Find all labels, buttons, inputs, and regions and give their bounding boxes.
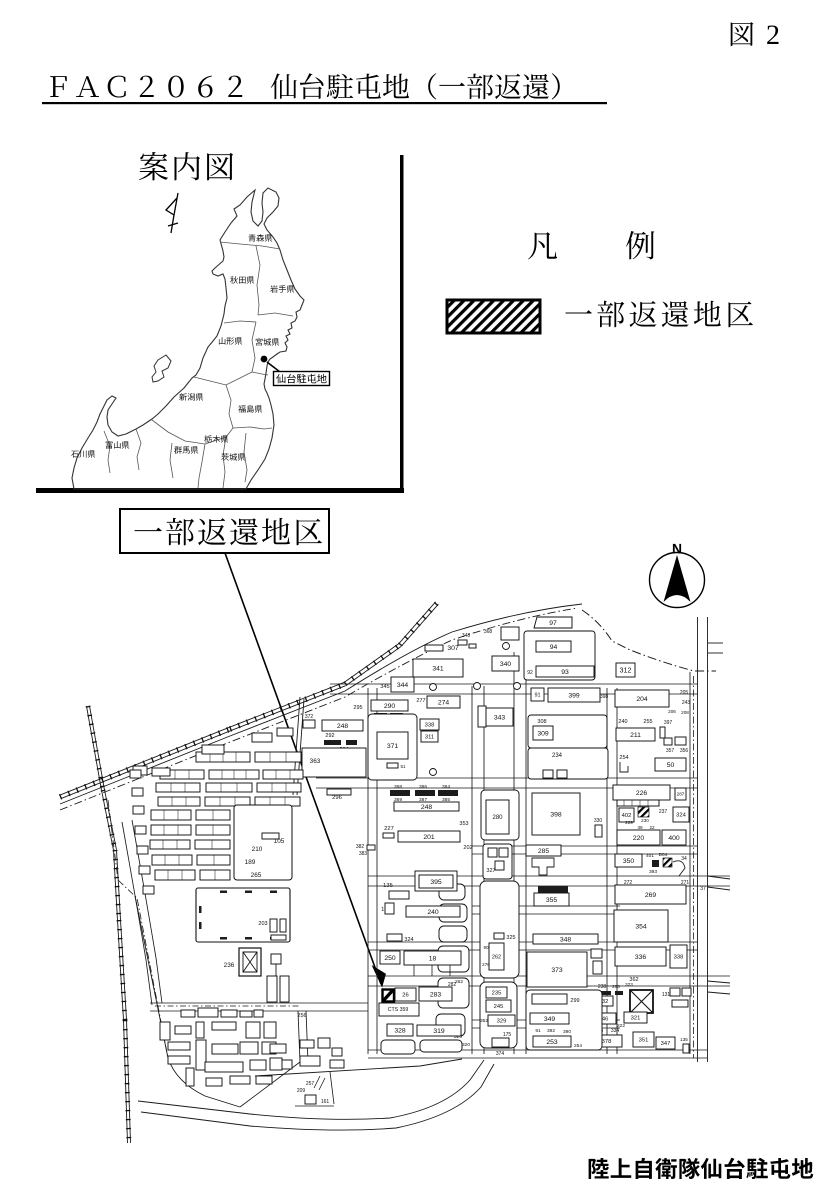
svg-text:257: 257 [306, 1081, 315, 1087]
svg-text:248: 248 [337, 723, 349, 730]
svg-text:94: 94 [550, 644, 558, 651]
svg-text:328: 328 [394, 1027, 406, 1034]
svg-text:235: 235 [492, 991, 502, 997]
svg-text:248: 248 [421, 804, 433, 811]
svg-text:254: 254 [574, 1043, 582, 1049]
svg-text:392: 392 [547, 1028, 555, 1034]
svg-text:256: 256 [297, 1013, 306, 1019]
svg-text:327: 327 [486, 868, 495, 874]
svg-text:345: 345 [380, 684, 389, 690]
svg-text:320: 320 [462, 1042, 470, 1048]
svg-text:234: 234 [552, 753, 563, 759]
svg-text:349: 349 [544, 1016, 556, 1023]
svg-text:368: 368 [394, 784, 402, 790]
svg-text:175: 175 [503, 1032, 512, 1038]
svg-text:206: 206 [668, 709, 676, 714]
svg-text:321: 321 [631, 1016, 641, 1022]
svg-text:355: 355 [546, 897, 558, 904]
svg-text:356: 356 [680, 748, 689, 754]
svg-text:277: 277 [416, 698, 425, 704]
svg-text:253: 253 [546, 1039, 558, 1046]
svg-text:240: 240 [618, 719, 627, 725]
svg-text:338: 338 [674, 955, 684, 961]
svg-text:287: 287 [677, 792, 685, 797]
svg-text:37: 37 [700, 886, 706, 892]
svg-text:309: 309 [537, 730, 549, 737]
svg-text:352: 352 [480, 1018, 488, 1024]
svg-text:371: 371 [387, 743, 399, 750]
svg-text:276: 276 [482, 962, 490, 967]
svg-text:274: 274 [438, 699, 450, 706]
svg-text:131: 131 [662, 992, 671, 998]
svg-text:398: 398 [600, 694, 609, 700]
svg-text:211: 211 [630, 732, 641, 739]
svg-text:203: 203 [258, 921, 267, 927]
svg-text:92: 92 [527, 670, 533, 676]
svg-text:97: 97 [549, 620, 557, 627]
svg-text:161: 161 [321, 1099, 330, 1105]
svg-text:319: 319 [433, 1028, 445, 1035]
svg-text:50: 50 [667, 762, 675, 769]
svg-text:397: 397 [664, 720, 673, 726]
svg-text:324: 324 [676, 813, 686, 819]
svg-text:39: 39 [637, 825, 643, 830]
svg-text:CTS 359: CTS 359 [388, 1007, 409, 1013]
svg-text:93: 93 [561, 669, 569, 676]
svg-text:253: 253 [612, 984, 620, 989]
svg-text:400: 400 [668, 835, 680, 842]
svg-text:285: 285 [538, 848, 550, 855]
svg-text:254: 254 [619, 755, 628, 761]
svg-text:329: 329 [497, 1019, 507, 1025]
svg-text:340: 340 [500, 661, 512, 668]
svg-text:312: 312 [620, 668, 632, 675]
svg-text:229: 229 [625, 820, 633, 825]
svg-text:307: 307 [447, 645, 459, 652]
svg-text:208: 208 [681, 710, 689, 715]
svg-text:357: 357 [666, 748, 675, 754]
svg-text:105: 105 [274, 838, 285, 845]
svg-text:295: 295 [353, 705, 362, 711]
svg-text:226: 226 [636, 790, 648, 797]
svg-text:201: 201 [423, 834, 435, 841]
svg-text:330: 330 [594, 818, 603, 824]
svg-text:343: 343 [494, 714, 506, 721]
svg-text:189: 189 [245, 859, 256, 866]
svg-text:341: 341 [432, 665, 444, 672]
svg-text:262: 262 [492, 954, 501, 960]
svg-text:386: 386 [419, 784, 427, 790]
svg-text:351: 351 [639, 1038, 649, 1044]
svg-text:220: 220 [633, 835, 645, 842]
svg-text:290: 290 [384, 703, 396, 710]
svg-text:283: 283 [430, 991, 442, 998]
svg-text:135: 135 [383, 883, 393, 889]
svg-text:262: 262 [455, 979, 463, 985]
svg-text:378: 378 [602, 1039, 612, 1045]
svg-text:230: 230 [641, 818, 649, 823]
svg-text:299: 299 [570, 998, 579, 1004]
svg-text:227: 227 [384, 826, 394, 832]
svg-text:348: 348 [560, 936, 572, 943]
svg-text:236: 236 [224, 962, 235, 969]
svg-text:338: 338 [425, 723, 435, 729]
svg-text:238: 238 [598, 984, 607, 990]
svg-text:399: 399 [568, 692, 580, 699]
svg-text:91: 91 [535, 1028, 541, 1034]
svg-text:344: 344 [397, 682, 409, 689]
svg-text:372: 372 [305, 714, 314, 720]
svg-text:311: 311 [425, 735, 434, 741]
svg-text:245: 245 [494, 1004, 504, 1010]
svg-text:26: 26 [402, 993, 408, 999]
svg-text:324: 324 [404, 937, 413, 943]
svg-text:18: 18 [429, 955, 437, 962]
svg-text:384: 384 [442, 784, 450, 790]
svg-text:308: 308 [537, 719, 546, 725]
svg-text:237: 237 [659, 809, 668, 815]
svg-text:280: 280 [492, 815, 503, 821]
svg-text:292: 292 [325, 733, 334, 739]
svg-text:202: 202 [463, 845, 472, 851]
svg-text:325: 325 [506, 935, 515, 941]
svg-text:373: 373 [551, 967, 563, 974]
svg-text:323: 323 [625, 982, 633, 987]
svg-text:383: 383 [359, 851, 368, 857]
svg-text:363: 363 [310, 758, 321, 765]
svg-text:296: 296 [332, 795, 342, 801]
svg-text:209: 209 [297, 1088, 306, 1094]
svg-text:334: 334 [611, 1028, 620, 1034]
svg-text:382: 382 [356, 844, 365, 850]
svg-text:354: 354 [635, 923, 647, 930]
svg-text:250: 250 [384, 955, 396, 962]
svg-text:269: 269 [645, 892, 657, 899]
svg-text:243: 243 [682, 700, 691, 706]
svg-text:240: 240 [427, 909, 439, 916]
svg-text:210: 210 [252, 846, 263, 853]
svg-text:34: 34 [681, 856, 687, 862]
svg-text:348: 348 [462, 633, 471, 639]
svg-text:347: 347 [661, 1041, 671, 1047]
svg-text:205: 205 [680, 690, 689, 696]
svg-text:51: 51 [400, 764, 406, 769]
svg-text:22: 22 [649, 825, 655, 830]
svg-text:401: 401 [646, 853, 654, 859]
svg-text:91: 91 [534, 692, 540, 698]
svg-text:398: 398 [550, 811, 562, 818]
svg-text:135: 135 [680, 1037, 688, 1042]
svg-text:D04: D04 [659, 852, 668, 858]
svg-text:90: 90 [483, 945, 489, 950]
svg-text:255: 255 [643, 719, 652, 725]
svg-text:393: 393 [649, 869, 657, 875]
svg-text:204: 204 [636, 696, 648, 703]
svg-text:353: 353 [459, 821, 468, 827]
svg-text:368: 368 [484, 629, 493, 635]
svg-text:395: 395 [430, 879, 442, 886]
svg-text:336: 336 [635, 954, 647, 961]
svg-text:265: 265 [251, 872, 262, 879]
svg-text:402: 402 [622, 813, 632, 819]
svg-text:390: 390 [563, 1029, 571, 1035]
svg-text:350: 350 [623, 858, 635, 865]
svg-text:374: 374 [496, 1051, 505, 1057]
